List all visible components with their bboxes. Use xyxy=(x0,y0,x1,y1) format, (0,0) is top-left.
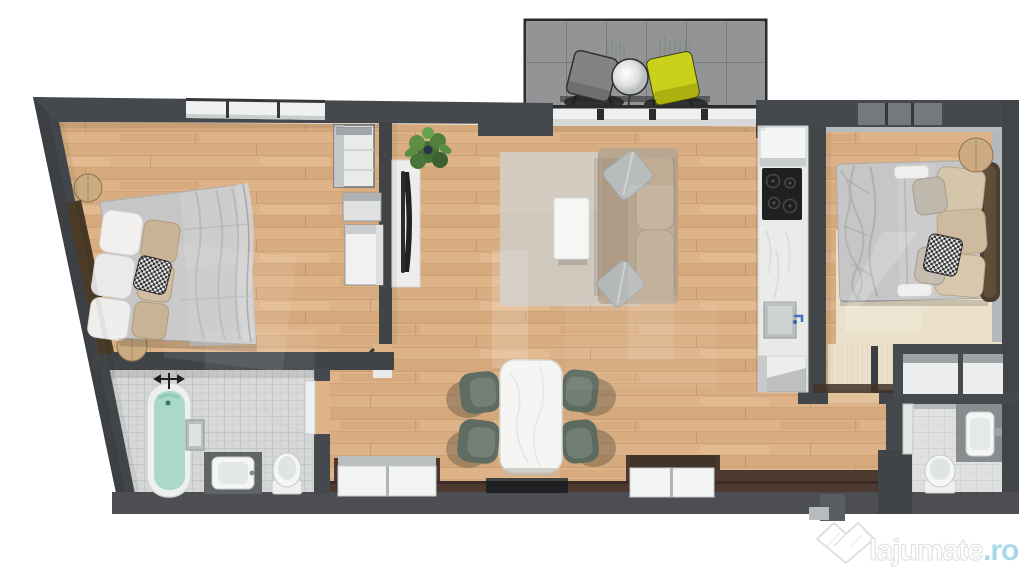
svg-text:.ro: .ro xyxy=(983,534,1019,567)
svg-text:lajumate: lajumate xyxy=(869,534,983,567)
